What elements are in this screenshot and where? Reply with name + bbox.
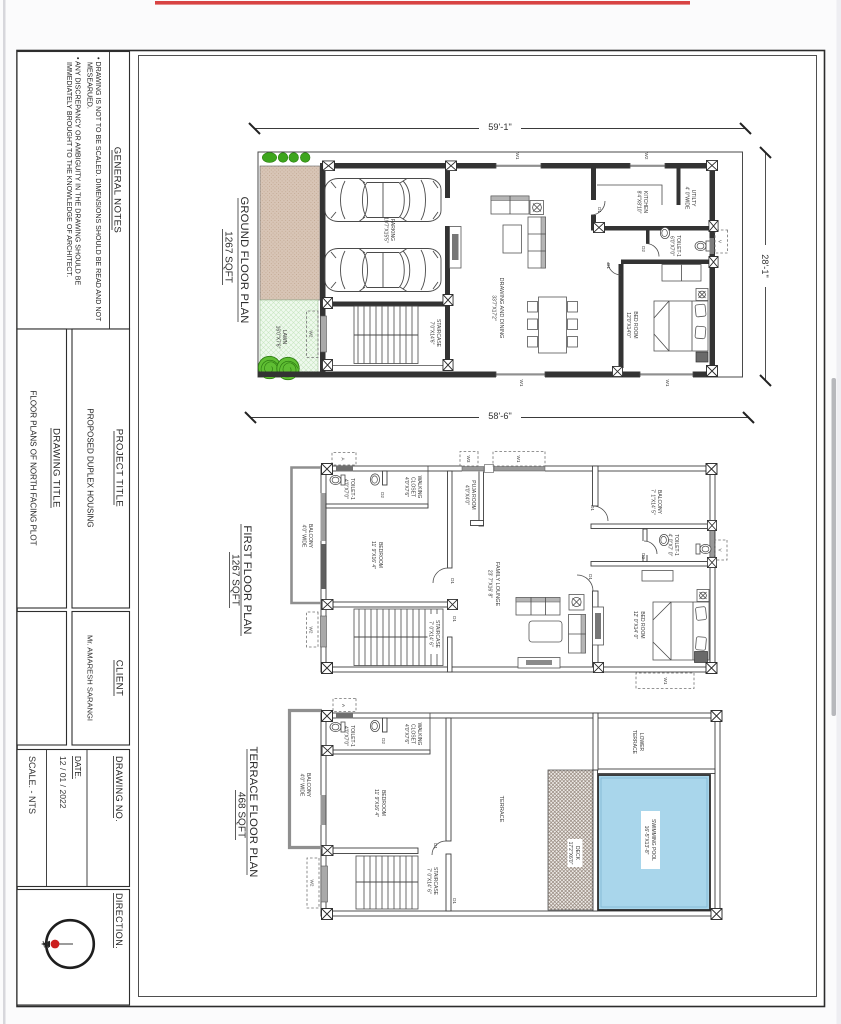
svg-text:12' 0"X14' 0": 12' 0"X14' 0" <box>632 611 638 639</box>
svg-text:TERRACE: TERRACE <box>498 796 504 823</box>
svg-text:TOILET-1: TOILET-1 <box>349 478 355 500</box>
svg-text:17'2"X6'0": 17'2"X6'0" <box>567 842 573 865</box>
svg-text:W2: W2 <box>309 331 314 338</box>
svg-text:W2: W2 <box>309 627 314 634</box>
svg-text:4'0" WIDE: 4'0" WIDE <box>301 525 307 548</box>
svg-text:4'0" WIDE: 4'0" WIDE <box>299 774 305 797</box>
svg-text:UTILTY: UTILTY <box>690 190 696 208</box>
svg-text:• DRAWING IS NOT TO BE SCALED: • DRAWING IS NOT TO BE SCALED. DIMENSION… <box>94 57 102 322</box>
svg-text:11' 9"X16' 4": 11' 9"X16' 4" <box>373 789 379 817</box>
svg-text:STAIRCASE: STAIRCASE <box>435 319 441 348</box>
svg-text:TERRACE: TERRACE <box>631 730 637 755</box>
svg-text:DECK: DECK <box>574 846 580 861</box>
svg-text:SCALE. - NTS: SCALE. - NTS <box>27 756 37 814</box>
svg-text:W1: W1 <box>663 678 668 685</box>
svg-text:WALKING: WALKING <box>416 723 422 746</box>
svg-text:D2: D2 <box>641 246 646 252</box>
svg-text:D2: D2 <box>380 492 385 498</box>
svg-text:D1: D1 <box>452 616 457 622</box>
svg-text:23' 7"X16' 8": 23' 7"X16' 8" <box>487 570 493 598</box>
svg-text:TOILET-1: TOILET-1 <box>675 235 681 257</box>
svg-text:6'0"X7'0": 6'0"X7'0" <box>669 236 675 256</box>
svg-text:FAMILY LOUNGE: FAMILY LOUNGE <box>494 562 500 607</box>
svg-text:16'-5"X13'-8": 16'-5"X13'-8" <box>643 826 649 855</box>
svg-text:FLOOR PLANS OF NORTH FACING PL: FLOOR PLANS OF NORTH FACING PLOT <box>29 391 38 546</box>
svg-text:468 SQFT: 468 SQFT <box>236 792 247 838</box>
svg-text:• ANY DISCREPANCY OR AMBIGUITY: • ANY DISCREPANCY OR AMBIGUITY IN THE DR… <box>74 57 82 285</box>
svg-text:BALCONY: BALCONY <box>656 490 662 515</box>
svg-text:D2: D2 <box>381 738 386 744</box>
svg-text:4'0"X7'6": 4'0"X7'6" <box>403 724 409 744</box>
svg-text:STAIRCASE: STAIRCASE <box>434 620 440 649</box>
svg-text:D1: D1 <box>588 574 593 580</box>
svg-text:CLOSET: CLOSET <box>410 477 416 497</box>
svg-text:PUJA ROOM: PUJA ROOM <box>470 480 476 509</box>
svg-text:DRAWING NO.: DRAWING NO. <box>114 756 124 822</box>
svg-text:D1: D1 <box>452 898 457 904</box>
svg-text:MESEARUED.: MESEARUED. <box>86 62 94 109</box>
svg-text:D2: D2 <box>641 553 646 559</box>
svg-text:PROPOSED DUPLEX HOUSING: PROPOSED DUPLEX HOUSING <box>86 408 95 527</box>
svg-text:W1: W1 <box>519 380 524 387</box>
svg-text:D1: D1 <box>597 207 602 213</box>
svg-text:KITCHEN: KITCHEN <box>642 191 648 213</box>
svg-text:TOILET-1: TOILET-1 <box>673 534 679 556</box>
svg-text:7'0"X14'6": 7'0"X14'6" <box>429 322 435 345</box>
svg-text:D1: D1 <box>450 578 455 584</box>
svg-text:W2: W2 <box>310 880 315 887</box>
svg-text:16'0"X7'6": 16'0"X7'6" <box>275 326 281 349</box>
svg-text:W1: W1 <box>516 456 521 463</box>
svg-text:59'-1": 59'-1" <box>488 122 511 132</box>
svg-text:7' 0"X14' 6": 7' 0"X14' 6" <box>428 621 434 647</box>
svg-text:1267 SQFT: 1267 SQFT <box>223 231 234 283</box>
svg-text:D1: D1 <box>606 263 611 269</box>
svg-text:CLIENT: CLIENT <box>114 660 125 697</box>
svg-text:BALCONY: BALCONY <box>305 773 311 798</box>
svg-text:12'0"X14'0": 12'0"X14'0" <box>625 312 631 338</box>
svg-text:7' 1"X14' 5": 7' 1"X14' 5" <box>650 489 656 515</box>
svg-text:11' 9"X16' 4": 11' 9"X16' 4" <box>370 541 376 569</box>
svg-text:CLOSET: CLOSET <box>410 724 416 744</box>
svg-text:D1: D1 <box>433 843 438 849</box>
svg-text:IMMEDIATELY BROUGHT TO THE KNO: IMMEDIATELY BROUGHT TO THE KNOWLEDGE OF … <box>65 62 73 277</box>
svg-text:W3: W3 <box>466 456 471 463</box>
svg-text:BEDROOM: BEDROOM <box>380 790 386 816</box>
svg-text:W1: W1 <box>665 380 670 387</box>
svg-text:PARKING: PARKING <box>389 219 395 241</box>
svg-text:W2: W2 <box>644 153 649 160</box>
svg-text:4' 0"WIDE: 4' 0"WIDE <box>684 187 690 210</box>
svg-text:D1: D1 <box>590 505 595 511</box>
svg-text:28'-1": 28'-1" <box>760 254 770 277</box>
svg-text:4'0"X4'0": 4'0"X4'0" <box>464 485 470 505</box>
svg-text:8'4"X8'10": 8'4"X8'10" <box>636 191 642 214</box>
svg-text:PROJECT TITLE: PROJECT TITLE <box>114 429 125 507</box>
svg-text:STAIRCASE: STAIRCASE <box>432 867 438 896</box>
svg-text:DATE.: DATE. <box>73 756 82 779</box>
svg-text:DRAWING TITLE: DRAWING TITLE <box>51 428 62 508</box>
svg-text:W1: W1 <box>515 153 520 160</box>
svg-text:Mr. AMARESH SARANGI: Mr. AMARESH SARANGI <box>86 635 95 721</box>
svg-text:TOILET-1: TOILET-1 <box>349 725 355 747</box>
svg-text:LAWN: LAWN <box>281 330 287 345</box>
svg-text:WALKING: WALKING <box>416 476 422 499</box>
svg-text:12 / 01 / 2022: 12 / 01 / 2022 <box>58 756 68 809</box>
svg-text:7' 0"X14' 6": 7' 0"X14' 6" <box>426 868 432 894</box>
svg-text:33'7"X17'2": 33'7"X17'2" <box>491 295 497 321</box>
svg-text:LOWER: LOWER <box>638 733 644 752</box>
svg-text:SWIMMING POOL: SWIMMING POOL <box>650 819 656 861</box>
svg-text:TERRACE FLOOR PLAN: TERRACE FLOOR PLAN <box>247 746 259 877</box>
svg-text:BEDROOM: BEDROOM <box>377 542 383 568</box>
svg-text:4'0"X7'6": 4'0"X7'6" <box>403 477 409 497</box>
svg-text:GROUND FLOOR PLAN: GROUND FLOOR PLAN <box>238 196 250 323</box>
svg-text:1267 SQFT: 1267 SQFT <box>230 554 241 606</box>
svg-text:FIRST FLOOR PLAN: FIRST FLOOR PLAN <box>241 525 253 634</box>
svg-text:BALCONY: BALCONY <box>307 524 313 549</box>
svg-text:BED ROOM: BED ROOM <box>639 611 645 638</box>
svg-text:GENERAL NOTES: GENERAL NOTES <box>112 147 123 233</box>
svg-text:19'7"X15'5": 19'7"X15'5" <box>383 217 389 243</box>
svg-text:58'-6": 58'-6" <box>488 411 511 421</box>
svg-text:DIRECTION.: DIRECTION. <box>114 893 124 949</box>
svg-text:DRAWING AND DINING: DRAWING AND DINING <box>498 277 504 338</box>
svg-text:BED ROOM: BED ROOM <box>632 311 638 338</box>
